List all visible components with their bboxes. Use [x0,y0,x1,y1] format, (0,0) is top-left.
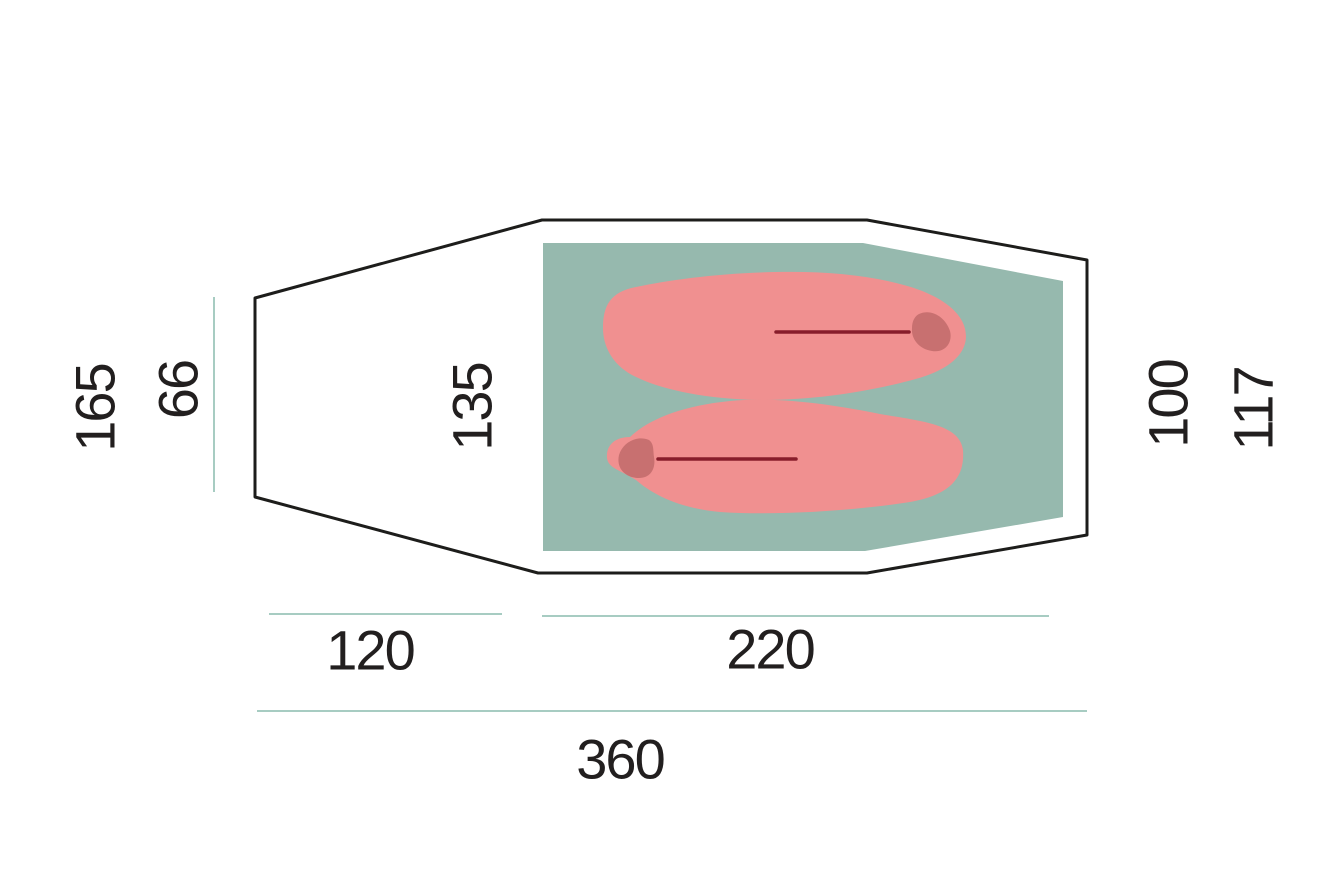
dimension-label-total-length: 360 [576,728,663,791]
dimension-label-left-outer: 165 [64,364,127,451]
tent-floor-plan-page: 165 66 135 100 117 120 220 360 [0,0,1340,896]
dimension-label-right-outer: 117 [1222,367,1285,450]
dimension-label-left-inner: 66 [147,361,210,419]
dimension-label-inner-length: 220 [726,618,813,681]
dimension-label-right-inner: 100 [1137,360,1200,447]
dimension-label-vestibule-length: 120 [326,619,413,682]
dimension-label-inner-width: 135 [441,363,504,450]
tent-floor-plan-diagram: 165 66 135 100 117 120 220 360 [0,0,1340,896]
